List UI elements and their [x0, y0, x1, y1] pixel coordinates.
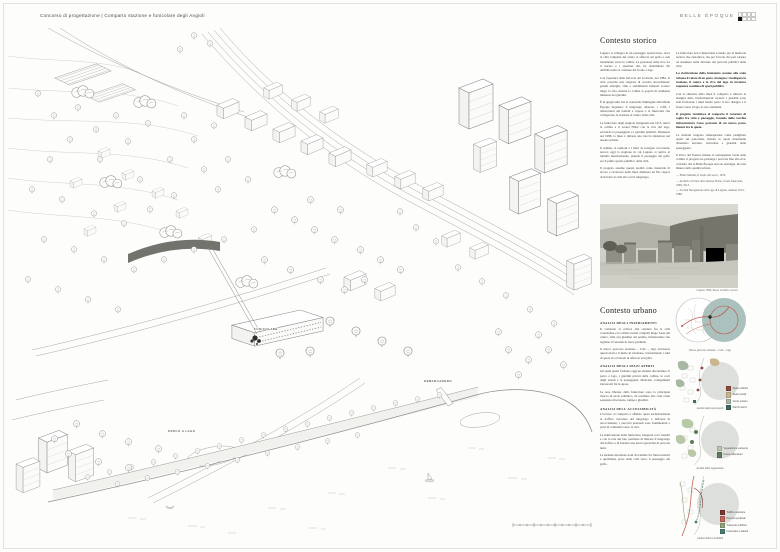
legend-swatch [717, 446, 722, 451]
paragraph: Gli spazi aperti formano oggi un sistema… [600, 369, 670, 386]
historic-section: Contesto storico Lugano si sviluppa in u… [600, 36, 748, 292]
paragraph-bold: La riattivazione della funicolare assume… [676, 71, 746, 88]
paragraph: L'accesso al comparto è affidato quasi e… [600, 412, 670, 429]
label-parco: PARCO A LAGO [168, 429, 196, 433]
paragraph: Le fermate diventano nodi di scambio fra… [600, 453, 670, 466]
diagram-vegetation-caption: Analisi della vegetazione [674, 467, 746, 470]
scale-bar [513, 523, 591, 527]
board-index-grid [738, 12, 756, 21]
legend-swatch [720, 516, 725, 521]
label-debarcadero: DEBARCADERO [424, 379, 452, 383]
diagram-route: Nuovo percorso stazione – CAC – lago [674, 294, 746, 352]
legend-swatch [720, 510, 725, 515]
paragraph: Con l'apertura della ferrovia del Gottar… [600, 76, 670, 98]
paragraph: Il comparto si colloca alla cerniera fra… [600, 327, 670, 344]
boat-icon [166, 473, 434, 508]
hill-contours [8, 56, 198, 232]
photo-caption: Lugano 1899, Photo Archivio storico [600, 289, 738, 292]
board-motto-block: BELLE ÉPOQUE [680, 12, 756, 21]
legend-vegetation: Vegetazione esistente Nuove alberature [717, 446, 748, 459]
diagram-accessibility: Traffico veicolare Percorsi pedonali Tra… [674, 474, 746, 540]
urban-subhead-2: ANALISI DEGLI SPAZI APERTI [600, 364, 670, 368]
historic-col1: Lugano si sviluppa in un paesaggio spett… [600, 51, 670, 198]
legend-swatch [726, 405, 731, 410]
paragraph: La funicolare non è importante soltanto … [676, 51, 746, 68]
paragraph-bold: Il progetto restituisce al comparto il c… [676, 112, 746, 129]
paragraph: Il sedime, le stazioni e i muri di soste… [600, 146, 670, 163]
diagram-accessibility-caption: Analisi dell'accessibilità [674, 537, 746, 540]
paragraph: Le stazioni vengono reinterpretate come … [676, 133, 746, 150]
legend-swatch [726, 399, 731, 404]
legend-swatch [720, 523, 725, 528]
paragraph: Il Parco del Tassino rimane il contrappu… [676, 153, 746, 170]
axonometric-drawing: FUNICOLARE DEBARCADERO PARCO A LAGO [8, 28, 594, 545]
urban-subhead-1: ANALISI DEGLI INSEDIAMENTI [600, 321, 670, 325]
motto-label: BELLE ÉPOQUE [680, 14, 735, 19]
right-column: Contesto storico Lugano si sviluppa in u… [600, 36, 748, 292]
historic-photo: Lugano 1899, Photo Archivio storico [600, 204, 738, 293]
paragraph: Il progetto assume questa eredità come m… [600, 166, 670, 179]
footnote: — Società Navigazione del Lago di Lugano… [676, 188, 746, 196]
urban-section: Contesto urbano ANALISI DEGLI INSEDIAMEN… [600, 306, 748, 469]
historic-heading: Contesto storico [600, 36, 748, 45]
legend-open-spaces: Spazi pubblici Spazi privati Verde urban… [726, 386, 748, 412]
diagram-route-caption: Nuovo percorso stazione – CAC – lago [674, 349, 746, 352]
paragraph: È in quegli anni che si consolida l'imma… [600, 100, 670, 117]
diagram-open-spaces: Spazi pubblici Spazi privati Verde urban… [674, 356, 746, 410]
legend-swatch [726, 386, 731, 391]
legend-accessibility: Traffico veicolare Percorsi pedonali Tra… [720, 510, 748, 536]
analysis-diagrams: Nuovo percorso stazione – CAC – lago [674, 294, 748, 544]
urban-heading: Contesto urbano [600, 306, 670, 315]
paragraph: Con la chiusura della linea il comparto … [676, 92, 746, 109]
label-funicolare: FUNICOLARE [254, 327, 278, 331]
paragraph: La riattivazione della funicolare, integ… [600, 433, 670, 450]
historic-col2: La funicolare non è importante soltanto … [676, 51, 746, 198]
urban-subhead-3: ANALISI DELL'ACCESSIBILITÀ [600, 407, 670, 411]
legend-swatch [720, 529, 725, 534]
footnote: — Plinio Martini, Il fondo del sacco, 19… [676, 173, 746, 177]
station-roof [128, 240, 220, 263]
paragraph: Le aree liberate dalla funicolare sono l… [600, 390, 670, 403]
footnote: — Archivio di Stato del Cantone Ticino, … [676, 179, 746, 187]
legend-swatch [726, 392, 731, 397]
paragraph: La funicolare degli Angioli, inaugurata … [600, 121, 670, 143]
urban-text-column: Contesto urbano ANALISI DEGLI INSEDIAMEN… [600, 306, 670, 466]
board-title: Concorso di progettazione | Comparto sta… [40, 13, 205, 18]
paragraph: Lugano si sviluppa in un paesaggio spett… [600, 51, 670, 73]
paragraph: Il nuovo percorso stazione – CAC – lago … [600, 347, 670, 360]
diagram-vegetation: Vegetazione esistente Nuove alberature A… [674, 414, 746, 470]
legend-swatch [717, 452, 722, 457]
